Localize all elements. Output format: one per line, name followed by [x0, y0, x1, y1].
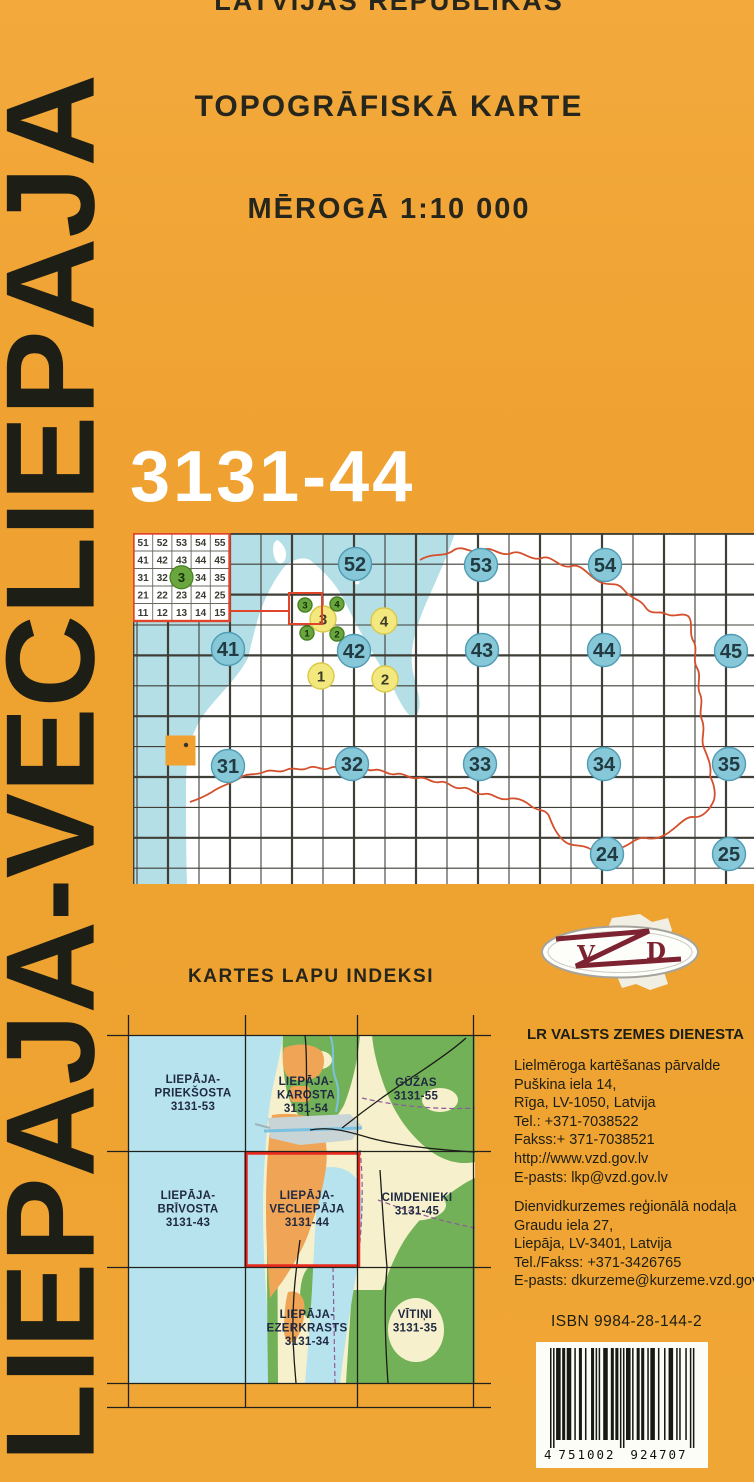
- svg-text:34: 34: [593, 754, 616, 776]
- svg-text:41: 41: [138, 555, 150, 566]
- logo-letter-d: D: [646, 938, 666, 965]
- sheet-index-heading: KARTES LAPU INDEKSI: [133, 966, 489, 988]
- barcode: 4 751002 924707: [536, 1342, 708, 1468]
- sheet-circle-44: 44: [588, 634, 621, 667]
- sheet-circle-53: 53: [465, 549, 498, 582]
- svg-text:41: 41: [217, 639, 239, 661]
- logo-letter-v: V: [576, 941, 596, 968]
- address-line: http://www.vzd.gov.lv: [514, 1150, 720, 1169]
- barcode-digit-lead: 4: [544, 1447, 552, 1462]
- sheet-circle-33: 33: [464, 748, 497, 781]
- sheet-label-3131-35: VĪTIŅI3131-35: [393, 1309, 438, 1335]
- sheet-circle-25: 25: [713, 838, 746, 871]
- liepaja-location-marker: [166, 736, 196, 766]
- publisher-office-1: Lielmēroga kartēšanas pārvaldePuškina ie…: [514, 1057, 720, 1187]
- svg-text:32: 32: [341, 754, 363, 776]
- barcode-digits-left: 751002: [558, 1447, 615, 1462]
- svg-text:3: 3: [302, 600, 307, 611]
- svg-text:24: 24: [195, 590, 207, 601]
- sheet-circle-42: 42: [338, 635, 371, 668]
- sheet-index-map: LIEPĀJA-PRIEKŠOSTA3131-53LIEPĀJA-KAROSTA…: [100, 1013, 495, 1415]
- svg-text:33: 33: [469, 754, 491, 776]
- sheet-circle-24: 24: [591, 838, 624, 871]
- svg-text:34: 34: [195, 573, 207, 584]
- svg-text:54: 54: [195, 538, 207, 549]
- address-line: Puškina iela 14,: [514, 1076, 720, 1095]
- numbering-inset: 5152535455414243444531323343521222324251…: [134, 534, 230, 622]
- svg-text:2: 2: [334, 629, 339, 640]
- svg-text:23: 23: [176, 590, 188, 601]
- svg-text:31: 31: [138, 573, 150, 584]
- svg-text:35: 35: [214, 573, 226, 584]
- sheet-circle-32: 32: [336, 748, 369, 781]
- scale-line: MĒROGĀ 1:10 000: [133, 193, 645, 226]
- svg-text:51: 51: [138, 538, 150, 549]
- sheet-circle-43: 43: [466, 634, 499, 667]
- svg-text:55: 55: [214, 538, 226, 549]
- svg-text:43: 43: [471, 640, 493, 662]
- svg-text:21: 21: [138, 590, 150, 601]
- svg-text:31: 31: [217, 756, 239, 778]
- latvia-index-map: 52535441424344453132333435242534123412 5…: [133, 533, 754, 884]
- sheet-circle-54: 54: [589, 549, 622, 582]
- isbn-text: ISBN 9984-28-144-2: [551, 1313, 702, 1331]
- quarter-circle-2: 2: [372, 666, 398, 692]
- subquarter-circle-3: 3: [298, 598, 312, 612]
- svg-text:45: 45: [214, 555, 226, 566]
- svg-text:1: 1: [304, 628, 310, 639]
- address-line: Graudu iela 27,: [514, 1217, 754, 1236]
- svg-text:42: 42: [343, 641, 365, 663]
- svg-text:53: 53: [176, 538, 188, 549]
- svg-text:53: 53: [470, 555, 492, 577]
- barcode-bars: [550, 1348, 694, 1448]
- country-line: LATVIJAS REPUBLIKAS: [133, 0, 645, 17]
- svg-text:15: 15: [214, 608, 226, 619]
- svg-text:12: 12: [157, 608, 169, 619]
- sheet-label-3131-54: LIEPĀJA-KAROSTA3131-54: [277, 1076, 335, 1115]
- sheet-circle-34: 34: [588, 748, 621, 781]
- svg-text:2: 2: [381, 671, 389, 688]
- publisher-heading: LR VALSTS ZEMES DIENESTA: [527, 1026, 744, 1043]
- svg-text:42: 42: [157, 555, 169, 566]
- svg-text:11: 11: [138, 608, 149, 619]
- quarter-circle-1: 1: [308, 663, 334, 689]
- map-type-line: TOPOGRĀFISKĀ KARTE: [133, 90, 645, 124]
- address-line: E-pasts: dkurzeme@kurzeme.vzd.gov.lv: [514, 1272, 754, 1291]
- sheet-circle-41: 41: [212, 633, 245, 666]
- svg-text:14: 14: [195, 608, 207, 619]
- publisher-office-2: Dienvidkurzemes reģionālā nodaļaGraudu i…: [514, 1198, 754, 1291]
- svg-text:22: 22: [157, 590, 169, 601]
- liepaja-city-dot: [184, 743, 188, 747]
- svg-text:52: 52: [344, 554, 366, 576]
- sheet-circle-45: 45: [715, 635, 748, 668]
- svg-text:24: 24: [596, 844, 619, 866]
- sheet-circle-52: 52: [339, 548, 372, 581]
- address-line: Tel./Fakss: +371-3426765: [514, 1254, 754, 1273]
- address-line: Rīga, LV-1050, Latvija: [514, 1094, 720, 1113]
- svg-text:13: 13: [176, 608, 188, 619]
- barcode-digits-right: 924707: [630, 1447, 687, 1462]
- address-line: Tel.: +371-7038522: [514, 1113, 720, 1132]
- quarter-circle-4: 4: [371, 608, 397, 634]
- address-line: Dienvidkurzemes reģionālā nodaļa: [514, 1198, 754, 1217]
- sheet-circle-35: 35: [713, 748, 746, 781]
- svg-text:3: 3: [178, 570, 185, 585]
- svg-text:25: 25: [214, 590, 226, 601]
- svg-text:43: 43: [176, 555, 188, 566]
- svg-text:45: 45: [720, 641, 742, 663]
- svg-text:32: 32: [157, 573, 169, 584]
- sheet-circle-31: 31: [212, 750, 245, 783]
- svg-text:54: 54: [594, 555, 617, 577]
- address-line: Liepāja, LV-3401, Latvija: [514, 1235, 754, 1254]
- vzd-logo: V D: [528, 908, 718, 998]
- sheet-label-3131-43: LIEPĀJA-BRĪVOSTA3131-43: [158, 1190, 219, 1229]
- sheet-number: 3131-44: [130, 436, 415, 518]
- address-line: E-pasts: lkp@vzd.gov.lv: [514, 1169, 720, 1188]
- address-line: Fakss:+ 371-7038521: [514, 1131, 720, 1150]
- svg-text:52: 52: [157, 538, 169, 549]
- subquarter-circle-1: 1: [300, 626, 314, 640]
- svg-text:44: 44: [195, 555, 207, 566]
- svg-text:35: 35: [718, 754, 740, 776]
- map-cover: LIEPĀJA-VECLIEPĀJA LATVIJAS REPUBLIKAS T…: [0, 0, 754, 1482]
- svg-text:4: 4: [380, 613, 389, 630]
- subquarter-circle-4: 4: [330, 597, 344, 611]
- address-line: Lielmēroga kartēšanas pārvalde: [514, 1057, 720, 1076]
- svg-text:1: 1: [317, 668, 325, 685]
- svg-text:4: 4: [334, 599, 340, 610]
- subquarter-circle-2: 2: [330, 627, 344, 641]
- svg-text:44: 44: [593, 640, 616, 662]
- svg-text:25: 25: [718, 844, 740, 866]
